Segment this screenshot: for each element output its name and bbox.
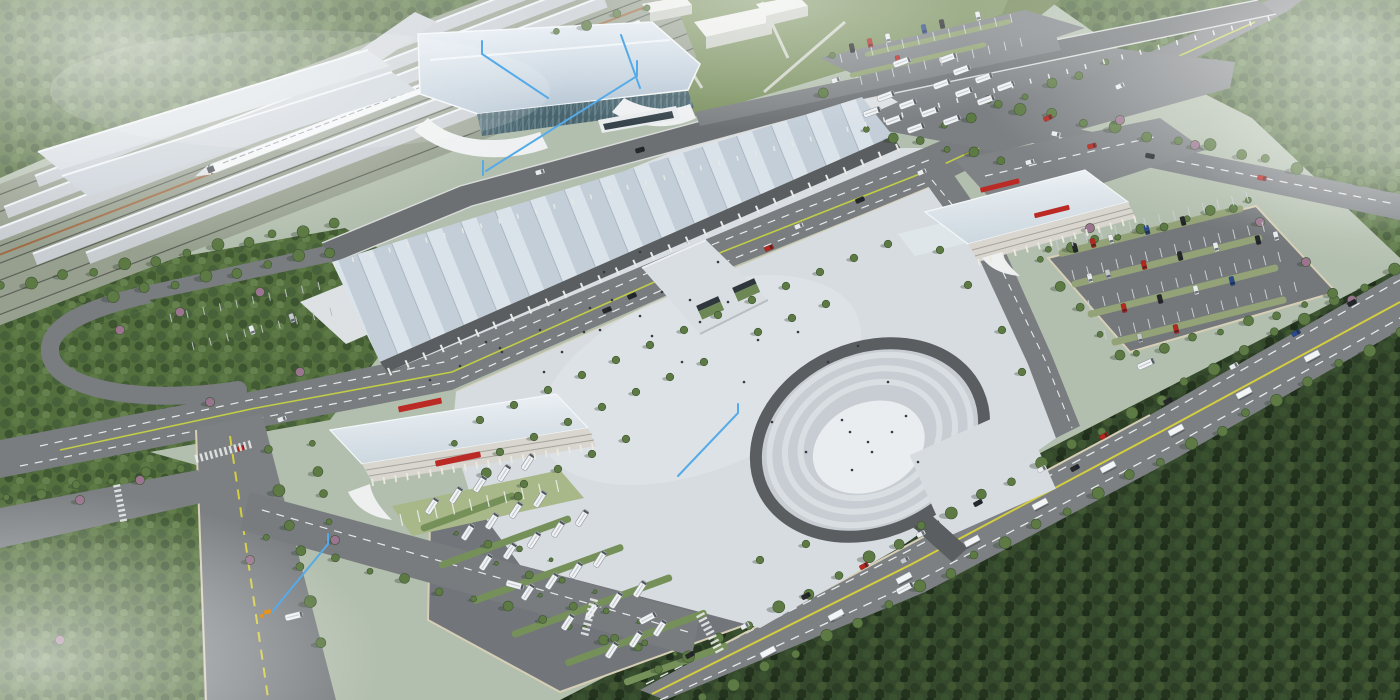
tree xyxy=(471,596,477,602)
tree xyxy=(454,531,458,535)
tree xyxy=(863,126,869,132)
tree xyxy=(309,440,315,446)
tree xyxy=(632,388,640,396)
tree xyxy=(539,615,547,623)
column-tick xyxy=(534,452,535,459)
tree xyxy=(569,602,577,610)
person xyxy=(717,261,720,264)
tree xyxy=(476,416,484,424)
tree xyxy=(284,520,294,530)
person xyxy=(797,331,800,334)
column-tick xyxy=(407,473,408,480)
person xyxy=(539,329,542,332)
person xyxy=(639,251,642,254)
tree xyxy=(554,465,562,473)
tree xyxy=(58,270,68,280)
column-tick xyxy=(476,462,477,469)
tree xyxy=(264,261,272,269)
tree xyxy=(773,601,785,613)
tree xyxy=(1063,508,1071,516)
tree xyxy=(802,540,810,548)
tree xyxy=(564,418,572,426)
tree xyxy=(326,519,332,525)
tree xyxy=(1298,313,1310,325)
tree xyxy=(530,433,538,441)
tree xyxy=(603,608,609,614)
tree xyxy=(1037,256,1043,262)
person xyxy=(661,291,664,294)
person xyxy=(611,299,614,302)
tree xyxy=(151,257,161,267)
tree xyxy=(646,341,654,349)
tree xyxy=(514,492,522,500)
tree xyxy=(325,248,335,258)
person xyxy=(459,365,462,368)
tree xyxy=(1115,234,1121,240)
tree xyxy=(1160,223,1168,231)
person xyxy=(501,351,504,354)
tree xyxy=(1328,288,1338,298)
tree xyxy=(863,551,875,563)
column-tick xyxy=(499,458,500,465)
tree xyxy=(1271,394,1283,406)
tree xyxy=(108,478,114,484)
tree xyxy=(917,521,925,529)
tree xyxy=(135,475,144,484)
tree xyxy=(1218,426,1228,436)
person xyxy=(599,329,602,332)
tree xyxy=(139,283,149,293)
column-tick xyxy=(546,451,547,458)
tree xyxy=(1156,458,1164,466)
tree xyxy=(494,561,498,565)
tree xyxy=(1031,519,1041,529)
tree xyxy=(1097,331,1103,337)
column-tick xyxy=(465,464,466,471)
tree xyxy=(998,326,1006,334)
tree xyxy=(200,270,212,282)
aerial-rendering-viewport: { "scene": { "description": "aerial 3d r… xyxy=(0,0,1400,700)
tree xyxy=(642,640,648,646)
tree xyxy=(821,629,833,641)
tree xyxy=(559,577,565,583)
person xyxy=(887,381,890,384)
tree xyxy=(496,448,504,456)
tree xyxy=(782,282,790,290)
tree xyxy=(232,268,242,278)
tree xyxy=(1303,377,1313,387)
column-tick xyxy=(418,471,419,478)
tree xyxy=(484,540,492,548)
tree xyxy=(1364,345,1376,357)
tree xyxy=(25,277,37,289)
column-tick xyxy=(488,460,489,467)
tree xyxy=(107,291,119,303)
tree xyxy=(520,480,528,488)
tree xyxy=(884,240,892,248)
tree xyxy=(885,601,893,609)
tree xyxy=(538,593,542,597)
person xyxy=(891,431,894,434)
tree xyxy=(760,661,770,671)
tree xyxy=(914,580,926,592)
tree xyxy=(90,268,98,276)
tree xyxy=(698,693,706,700)
tree xyxy=(205,397,214,406)
tree xyxy=(916,137,924,145)
tree xyxy=(969,147,979,157)
tree xyxy=(788,314,796,322)
person xyxy=(757,339,760,342)
tree xyxy=(654,665,662,673)
tree xyxy=(177,465,185,473)
column-tick xyxy=(441,468,442,475)
tree xyxy=(853,618,863,628)
tree xyxy=(1301,257,1310,266)
tree xyxy=(727,679,739,691)
column-tick xyxy=(430,470,431,477)
tree xyxy=(1126,407,1138,419)
tree xyxy=(888,133,898,143)
person xyxy=(743,381,746,384)
tree xyxy=(1239,345,1249,355)
column-tick xyxy=(384,477,385,484)
tree xyxy=(435,588,443,596)
tree xyxy=(451,440,457,446)
person xyxy=(917,461,920,464)
tree xyxy=(1159,343,1169,353)
person xyxy=(429,379,432,382)
column-tick xyxy=(569,447,570,454)
tree xyxy=(295,367,304,376)
tree xyxy=(850,254,858,262)
tree xyxy=(1218,329,1224,335)
tree xyxy=(999,537,1011,549)
tree xyxy=(1045,246,1051,252)
tree xyxy=(175,307,184,316)
column-tick xyxy=(580,445,581,452)
tree xyxy=(264,445,272,453)
tree xyxy=(1008,478,1016,486)
tree xyxy=(964,281,972,289)
person xyxy=(561,351,564,354)
person xyxy=(857,345,860,348)
column-tick xyxy=(372,479,373,486)
tree xyxy=(593,590,597,594)
tree xyxy=(997,157,1005,165)
tree xyxy=(273,485,285,497)
tree xyxy=(331,554,339,562)
tree xyxy=(894,539,904,549)
tree xyxy=(367,568,373,574)
tree xyxy=(946,569,956,579)
tree xyxy=(1115,350,1125,360)
tree xyxy=(1180,378,1188,386)
tree xyxy=(1124,470,1134,480)
tree xyxy=(255,287,264,296)
tree xyxy=(171,281,179,289)
column-tick xyxy=(395,475,396,482)
person xyxy=(827,361,830,364)
tree xyxy=(612,356,620,364)
tree xyxy=(525,571,533,579)
column-tick xyxy=(592,443,593,450)
tree xyxy=(816,268,824,276)
person xyxy=(485,341,488,344)
person xyxy=(589,307,592,310)
tree xyxy=(622,435,630,443)
person xyxy=(771,421,774,424)
tree xyxy=(510,401,518,409)
tree xyxy=(503,601,513,611)
tree xyxy=(320,490,328,498)
tree xyxy=(1055,281,1065,291)
tree xyxy=(966,113,976,123)
tree xyxy=(970,551,978,559)
person xyxy=(583,331,586,334)
tree xyxy=(835,572,843,580)
station-aerial-rendering xyxy=(0,0,1400,700)
tree xyxy=(976,489,986,499)
tree xyxy=(748,296,756,304)
tree xyxy=(598,403,606,411)
tree xyxy=(578,371,586,379)
tree xyxy=(756,556,764,564)
tree xyxy=(1335,359,1343,367)
person xyxy=(689,299,692,302)
tree xyxy=(400,573,410,583)
tree xyxy=(1244,316,1254,326)
tree xyxy=(78,295,86,303)
person xyxy=(849,431,852,434)
tree xyxy=(1208,363,1220,375)
person xyxy=(851,469,854,472)
person xyxy=(639,315,642,318)
tree xyxy=(1270,328,1278,336)
person xyxy=(603,271,606,274)
tree xyxy=(936,246,944,254)
person xyxy=(651,335,654,338)
tree xyxy=(611,634,619,642)
tree xyxy=(822,300,830,308)
tree xyxy=(1302,302,1308,308)
tree xyxy=(1361,284,1369,292)
tree xyxy=(183,249,191,257)
tree xyxy=(1018,368,1026,376)
tree xyxy=(1092,487,1104,499)
tree xyxy=(549,558,553,562)
tree xyxy=(700,358,708,366)
person xyxy=(499,347,502,350)
tree xyxy=(666,373,674,381)
tree xyxy=(293,250,305,262)
tree xyxy=(680,326,688,334)
tree xyxy=(115,325,124,334)
column-tick xyxy=(511,456,512,463)
person xyxy=(805,451,808,454)
tree xyxy=(1076,303,1084,311)
person xyxy=(867,441,870,444)
tree xyxy=(1242,409,1250,417)
column-tick xyxy=(453,466,454,473)
person xyxy=(841,419,844,422)
person xyxy=(871,451,874,454)
tree xyxy=(141,467,151,477)
tree xyxy=(714,311,722,319)
tree xyxy=(313,467,323,477)
tree xyxy=(72,481,80,489)
tree xyxy=(330,535,339,544)
tree xyxy=(945,507,957,519)
person xyxy=(559,309,562,312)
tree xyxy=(1185,438,1197,450)
tree xyxy=(792,650,800,658)
tree xyxy=(944,146,950,152)
tree xyxy=(588,450,596,458)
person xyxy=(905,415,908,418)
tree xyxy=(1067,439,1077,449)
column-tick xyxy=(557,449,558,456)
tree xyxy=(754,328,762,336)
column-tick xyxy=(523,454,524,461)
tree xyxy=(1273,312,1281,320)
tree xyxy=(544,386,552,394)
tree xyxy=(1133,350,1139,356)
person xyxy=(699,321,702,324)
tree xyxy=(119,258,131,270)
person xyxy=(681,361,684,364)
tree xyxy=(673,652,677,656)
person xyxy=(727,301,730,304)
tree xyxy=(517,546,523,552)
tree xyxy=(1188,333,1196,341)
person xyxy=(543,371,546,374)
